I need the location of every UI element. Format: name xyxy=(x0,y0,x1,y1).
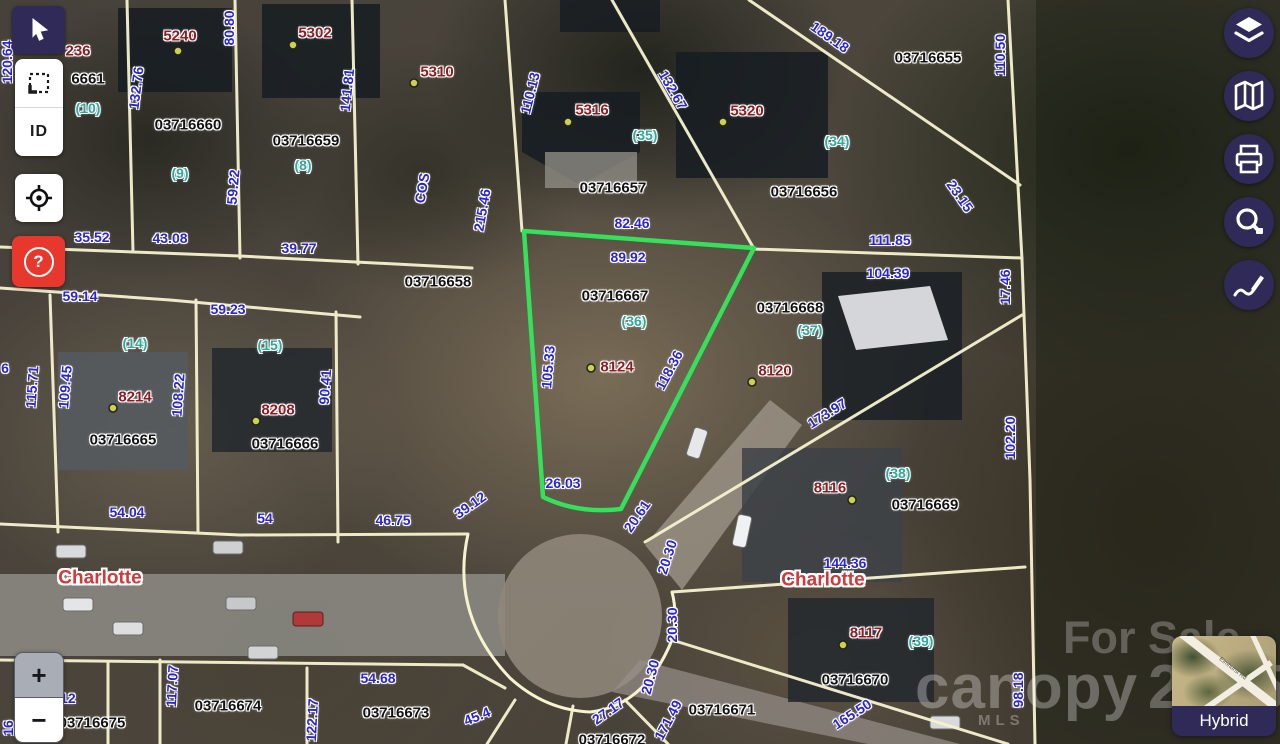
city-label: Charlotte xyxy=(781,571,864,590)
measure-button[interactable] xyxy=(1224,197,1274,247)
parcel-id-label: 03716675 xyxy=(59,716,126,731)
parcel-id-label: 03716666 xyxy=(252,437,319,452)
dimension-label: 110.50 xyxy=(993,34,1007,76)
address-label: 5240 xyxy=(163,29,196,44)
parcel-id-label: 03716674 xyxy=(195,699,262,714)
watermark-canopy-brand: canopy xyxy=(915,652,1138,723)
address-label: 5316 xyxy=(575,103,608,118)
dimension-label: 17.46 xyxy=(998,269,1012,304)
address-label: 8214 xyxy=(118,390,151,405)
parcel-id-label: 03716658 xyxy=(405,275,472,290)
dimension-label: 115.71 xyxy=(24,366,41,409)
address-label: 5320 xyxy=(730,104,763,119)
dimension-label: 39.77 xyxy=(281,241,316,255)
dimension-label: 59.22 xyxy=(224,169,241,205)
locate-crosshair-icon xyxy=(25,184,53,212)
pointer-cursor-icon xyxy=(26,17,52,43)
parcel-id-label: 03716671 xyxy=(689,703,756,718)
dimension-label: 82.46 xyxy=(614,216,649,230)
dimension-label: 59.14 xyxy=(62,289,97,303)
parcel-id-label: 03716656 xyxy=(771,185,838,200)
dimension-label: 109.45 xyxy=(56,365,74,409)
toolbar-right xyxy=(1224,8,1274,310)
parcel-id-label: 03716670 xyxy=(822,673,889,688)
draw-pencil-icon xyxy=(1224,260,1274,310)
address-label: 5302 xyxy=(298,26,331,41)
dimension-label: 104.39 xyxy=(867,266,910,280)
dimension-label: 80.80 xyxy=(222,10,236,45)
dimension-label: 46.75 xyxy=(375,513,410,527)
toolbar-left: ID ? xyxy=(12,6,66,287)
basemap-label: Hybrid xyxy=(1172,706,1276,736)
address-label: 5310 xyxy=(420,65,453,80)
lot-number-label: (37) xyxy=(798,323,823,337)
basemap-gallery-button[interactable] xyxy=(1224,71,1274,121)
dimension-label: 16 xyxy=(1,720,15,736)
basemap-selector[interactable]: Elmhurst Rd Hybrid xyxy=(1172,636,1276,736)
parcel-id-label: 03716659 xyxy=(273,134,340,149)
parcel-id-label: 03716655 xyxy=(895,51,962,66)
parcel-id-label: 03716657 xyxy=(580,181,647,196)
measure-tape-icon xyxy=(1224,197,1274,247)
lot-number-label: (39) xyxy=(909,634,934,648)
select-tools-group: ID xyxy=(15,59,63,156)
dimension-label: 90.41 xyxy=(317,369,333,405)
address-label: 8120 xyxy=(758,364,791,379)
dimension-label: 122.17 xyxy=(304,698,320,742)
dimension-label: 20.30 xyxy=(665,607,679,642)
lot-number-label: (35) xyxy=(633,128,658,142)
dimension-label: 105.33 xyxy=(539,345,557,389)
parcel-id-label: 6661 xyxy=(71,72,104,87)
dimension-label: 6 xyxy=(1,361,9,375)
address-label: 8116 xyxy=(814,481,847,496)
dimension-label: 43.08 xyxy=(152,231,187,245)
dimension-label: 59.23 xyxy=(210,302,245,316)
lot-number-label: (15) xyxy=(258,338,283,352)
dimension-label: 102.20 xyxy=(1003,417,1017,460)
marquee-select-button[interactable] xyxy=(15,59,63,107)
lot-number-label: (8) xyxy=(294,158,311,172)
parcel-id-label: 03716672 xyxy=(579,733,646,744)
zoom-in-button[interactable]: + xyxy=(15,653,63,698)
lot-number-label: (38) xyxy=(886,466,911,480)
layers-button[interactable] xyxy=(1224,8,1274,58)
lot-number-label: (36) xyxy=(622,314,647,328)
zoom-control: + − xyxy=(14,652,64,743)
lot-number-label: (9) xyxy=(171,166,188,180)
address-label: 8124 xyxy=(600,360,633,375)
dimension-label: 35.52 xyxy=(74,230,109,244)
dimension-label: 98.18 xyxy=(1011,672,1025,707)
identify-tool-button[interactable]: ID xyxy=(15,108,63,156)
parcel-id-label: 03716660 xyxy=(155,118,222,133)
address-label: 8117 xyxy=(850,626,883,641)
dimension-label: 54 xyxy=(257,511,273,525)
dimension-label: 54.04 xyxy=(109,505,144,519)
lot-number-label: (10) xyxy=(76,101,101,115)
dimension-label: 144.36 xyxy=(824,556,867,570)
address-label: 236 xyxy=(65,44,90,59)
locate-button[interactable] xyxy=(15,174,63,222)
zoom-out-button[interactable]: − xyxy=(15,698,63,742)
lot-number-label: (34) xyxy=(825,134,850,148)
dimension-label: 54.68 xyxy=(360,671,395,685)
identify-label: ID xyxy=(30,123,48,141)
marquee-select-icon xyxy=(26,70,52,96)
dimension-label: 111.85 xyxy=(869,233,910,247)
help-question-icon: ? xyxy=(24,247,54,277)
folded-map-icon xyxy=(1224,71,1274,121)
watermark-mls: MLS xyxy=(978,712,1025,729)
printer-icon xyxy=(1224,134,1274,184)
dimension-label: 26.03 xyxy=(545,476,580,490)
address-label: 8208 xyxy=(261,403,294,418)
draw-button[interactable] xyxy=(1224,260,1274,310)
parcel-id-label: 03716665 xyxy=(90,433,157,448)
city-label: Charlotte xyxy=(58,569,141,588)
print-button[interactable] xyxy=(1224,134,1274,184)
help-button[interactable]: ? xyxy=(12,236,65,287)
layers-icon xyxy=(1224,8,1274,58)
parcel-id-label: 03716669 xyxy=(892,498,959,513)
parcel-id-label: 03716667 xyxy=(582,289,649,304)
parcel-id-label: 03716668 xyxy=(757,301,824,316)
basemap-thumbnail: Elmhurst Rd xyxy=(1172,636,1276,706)
dimension-label: 89.92 xyxy=(610,250,645,264)
pointer-tool-button[interactable] xyxy=(12,6,65,54)
parcel-id-label: 03716673 xyxy=(363,706,430,721)
map-viewport[interactable]: 2366661(10)120.6452405302531080.80132.76… xyxy=(0,0,1280,744)
dimension-label: 108.22 xyxy=(170,373,187,417)
lot-number-label: (14) xyxy=(123,336,148,350)
dimension-label: 117.07 xyxy=(164,665,180,708)
